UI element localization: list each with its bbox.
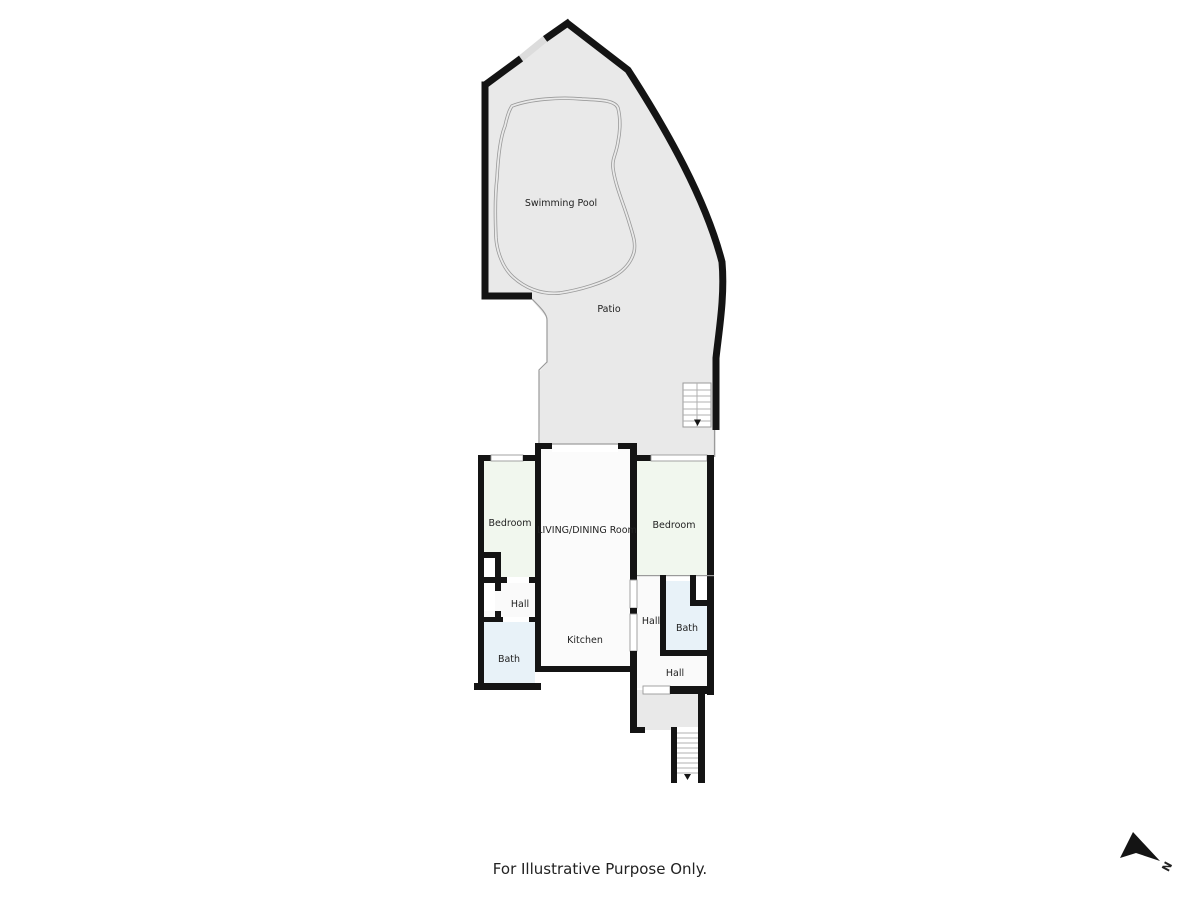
wall-bedroomR-top-b <box>707 455 714 461</box>
wall-bedroomL-top-a <box>478 455 491 461</box>
wall-closetR-bottom <box>690 600 714 606</box>
label-swimming-pool: Swimming Pool <box>525 198 597 209</box>
wall-closetL-top <box>478 552 501 558</box>
label-hall-middle: Hall <box>642 616 660 627</box>
label-bedroom-right: Bedroom <box>653 520 696 531</box>
wall-left-module-bottom <box>474 683 541 690</box>
swimming-pool <box>495 98 634 293</box>
wall-right-outer <box>707 461 714 695</box>
floor-plan-svg: Swimming Pool Patio Bedroom LIVING/DININ… <box>0 0 1200 900</box>
opening-living-patio-edge <box>552 443 618 444</box>
living-dining-room <box>541 449 630 666</box>
pool-outline <box>495 98 634 293</box>
label-bath-left: Bath <box>498 654 520 665</box>
patio-area <box>482 22 723 458</box>
floor-plan-page: Swimming Pool Patio Bedroom LIVING/DININ… <box>0 0 1200 900</box>
entry-stairs-wall-right <box>698 690 705 783</box>
wall-hallL-bottom-a <box>484 617 503 622</box>
wall-bathR-left <box>660 575 666 656</box>
wall-bedroomL-bottom-b <box>529 577 535 583</box>
north-compass: N <box>1120 832 1174 873</box>
north-letter: N <box>1159 859 1175 873</box>
bath-left-room <box>484 622 535 683</box>
bedroom-right-room <box>637 461 707 575</box>
wall-living-right-b <box>630 608 637 614</box>
window-bedroom-left <box>491 455 523 461</box>
entry-porch <box>637 690 698 730</box>
wall-kitchen-bottom <box>535 666 637 672</box>
patio-stairs <box>683 383 711 427</box>
label-living-dining: LIVING/DINING Room <box>537 525 637 536</box>
wall-living-top-a <box>535 443 552 449</box>
wall-living-right-a <box>630 443 637 580</box>
opening-living-hall-b <box>630 614 637 651</box>
wall-left-outer <box>478 455 484 690</box>
window-bedroom-right <box>651 455 707 461</box>
wall-living-right-c <box>630 651 637 733</box>
divider-bedroomR-bottom <box>637 575 714 576</box>
north-arrow-icon <box>1120 832 1160 861</box>
label-kitchen: Kitchen <box>567 635 603 646</box>
wall-porch-bottom-stub <box>630 727 645 733</box>
closet-left <box>484 558 495 611</box>
wall-bedroomR-top-a <box>633 455 651 461</box>
opening-living-hall-a <box>630 580 637 608</box>
wall-hallL-bottom-b <box>529 617 535 622</box>
disclaimer-text: For Illustrative Purpose Only. <box>493 860 707 878</box>
label-bath-right: Bath <box>676 623 698 634</box>
entry-stairs-wall-left <box>671 727 677 783</box>
wall-closetL-side-a <box>495 558 501 591</box>
wall-living-left <box>535 443 541 672</box>
label-hall-left: Hall <box>511 599 529 610</box>
label-hall-lower: Hall <box>666 668 684 679</box>
entry-door <box>643 686 670 694</box>
wall-bathR-bottom <box>660 650 714 656</box>
opening-living-patio <box>552 444 618 452</box>
label-bedroom-left: Bedroom <box>489 518 532 529</box>
label-patio: Patio <box>597 304 620 315</box>
wall-hall-lower-bottom <box>670 686 714 694</box>
